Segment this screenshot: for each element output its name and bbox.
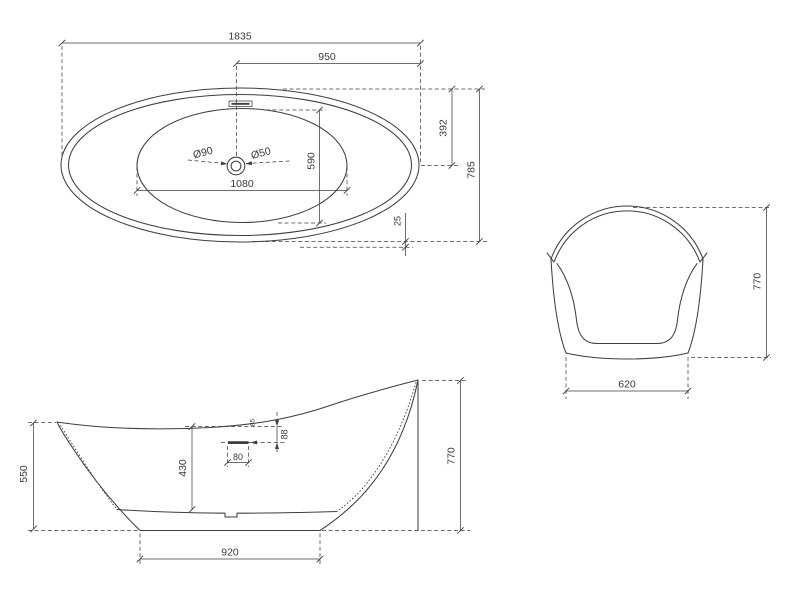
drain-outer-circle <box>227 157 245 175</box>
side-inner-wall-right <box>337 383 416 512</box>
end-base-edge <box>566 353 688 359</box>
side-basin-bottom <box>117 510 337 518</box>
dim-overflow-horizontal: 80 <box>233 452 243 462</box>
side-view: 550 430 80 88 85 920 770 <box>18 377 470 565</box>
tub-inner-rim-ellipse <box>69 95 412 236</box>
bathtub-technical-drawing: 1835 950 392 785 590 1080 Ø90 Ø50 25 770… <box>0 0 800 595</box>
dim-side-base-length: 920 <box>221 547 239 559</box>
dim-drain-outer: Ø90 <box>192 145 214 162</box>
dim-top-to-center: 392 <box>438 119 450 137</box>
end-left-side <box>551 259 566 353</box>
top-view: 1835 950 392 785 590 1080 Ø90 Ø50 25 <box>59 31 487 257</box>
dim-basin-length: 1080 <box>230 178 254 190</box>
end-right-side <box>688 259 703 353</box>
dim-rim-offset: 25 <box>393 216 403 226</box>
dim-side-basin-depth: 430 <box>177 459 189 477</box>
dim-end-base-width: 620 <box>618 379 636 391</box>
dim-end-height: 770 <box>752 273 764 291</box>
dim-center-to-right: 950 <box>318 51 336 63</box>
dim-basin-width: 590 <box>306 152 318 170</box>
dim-overall-width: 785 <box>466 161 478 179</box>
dim-overflow-vertical: 88 <box>280 429 290 439</box>
dim-overflow-note: 85 <box>250 419 257 427</box>
end-view-dimension-lines <box>563 204 771 399</box>
dim-side-left-height: 550 <box>18 465 30 483</box>
dim-side-right-height: 770 <box>446 447 458 465</box>
dim-drain-inner: Ø50 <box>250 145 272 162</box>
side-view-dimension-lines <box>28 377 470 565</box>
drain-inner-circle <box>231 161 241 171</box>
end-view: 770 620 <box>547 204 771 399</box>
tub-outer-rim-ellipse <box>61 88 419 242</box>
overflow-slot-top-inner <box>232 103 250 105</box>
end-inner-dome <box>555 211 700 261</box>
dim-overall-length: 1835 <box>228 31 252 43</box>
end-inner-basin <box>557 264 697 344</box>
